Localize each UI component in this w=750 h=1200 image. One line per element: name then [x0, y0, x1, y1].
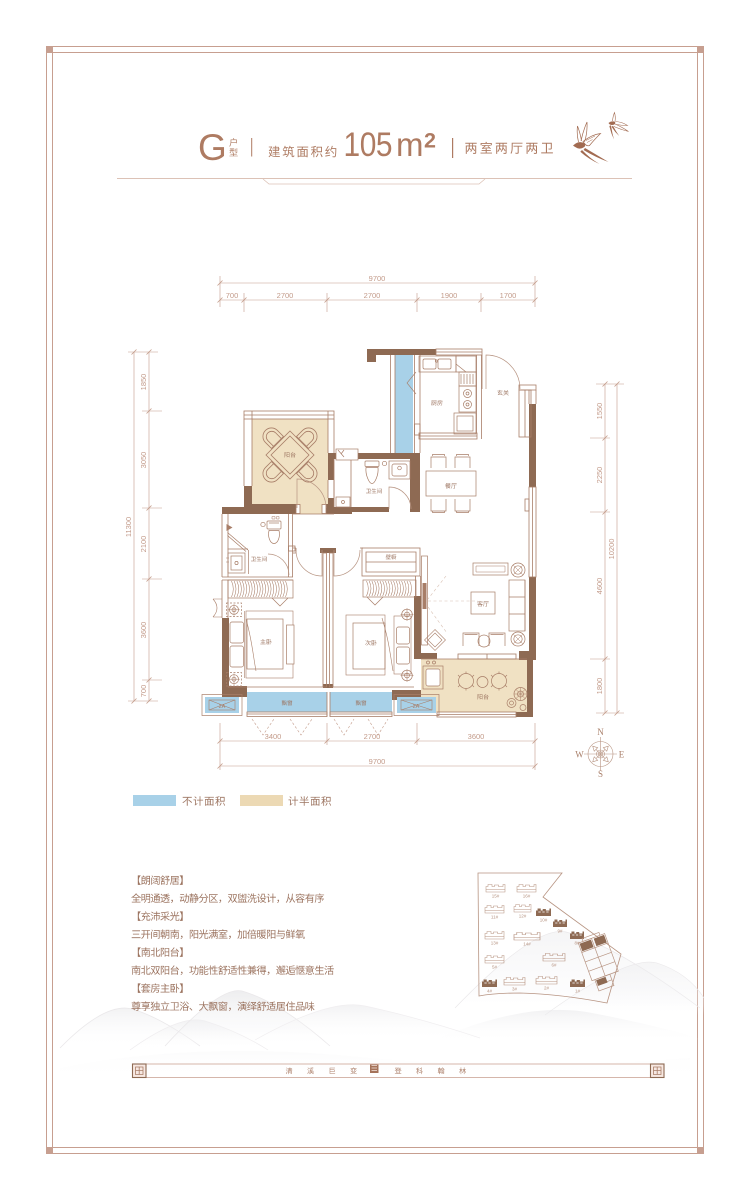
svg-text:1#: 1#	[575, 989, 581, 994]
svg-text:W: W	[575, 750, 584, 760]
svg-text:10#: 10#	[540, 918, 548, 923]
svg-text:9#: 9#	[557, 929, 563, 934]
svg-text:105: 105	[344, 125, 393, 163]
svg-text:9700: 9700	[369, 757, 386, 766]
svg-text:6#: 6#	[551, 963, 557, 968]
svg-text:2#: 2#	[544, 986, 550, 991]
svg-text:G: G	[198, 127, 227, 168]
svg-text:12#: 12#	[519, 914, 527, 919]
svg-text:3400: 3400	[265, 732, 282, 741]
svg-text:1800: 1800	[595, 678, 604, 695]
svg-text:3050: 3050	[139, 452, 148, 469]
svg-text:1900: 1900	[441, 291, 458, 300]
svg-text:3600: 3600	[468, 732, 485, 741]
svg-text:2: 2	[424, 129, 436, 153]
svg-text:11300: 11300	[124, 517, 133, 537]
svg-text:N: N	[597, 727, 604, 737]
svg-text:2100: 2100	[139, 536, 148, 553]
svg-text:2250: 2250	[595, 467, 604, 484]
svg-text:10200: 10200	[607, 539, 616, 560]
svg-text:3#: 3#	[512, 987, 518, 992]
svg-text:2700: 2700	[364, 732, 381, 741]
svg-text:13#: 13#	[491, 941, 499, 946]
svg-text:5#: 5#	[492, 965, 498, 970]
svg-text:m: m	[396, 126, 424, 163]
svg-text:9700: 9700	[369, 274, 386, 283]
svg-text:700: 700	[226, 291, 239, 300]
svg-text:1850: 1850	[139, 374, 148, 391]
svg-text:14#: 14#	[523, 942, 531, 947]
svg-text:S: S	[598, 769, 603, 779]
svg-text:1550: 1550	[595, 403, 604, 420]
svg-text:E: E	[619, 750, 625, 760]
svg-text:1700: 1700	[500, 291, 517, 300]
svg-text:2A: 2A	[413, 704, 420, 710]
svg-text:11#: 11#	[491, 915, 499, 920]
svg-text:3600: 3600	[139, 622, 148, 639]
svg-text:4600: 4600	[595, 578, 604, 595]
svg-text:15#: 15#	[492, 894, 500, 899]
svg-text:2700: 2700	[277, 291, 294, 300]
svg-text:2700: 2700	[364, 291, 381, 300]
svg-text:4#: 4#	[487, 989, 493, 994]
svg-text:700: 700	[139, 685, 148, 698]
svg-text:2A: 2A	[219, 704, 226, 710]
svg-text:16#: 16#	[523, 894, 531, 899]
